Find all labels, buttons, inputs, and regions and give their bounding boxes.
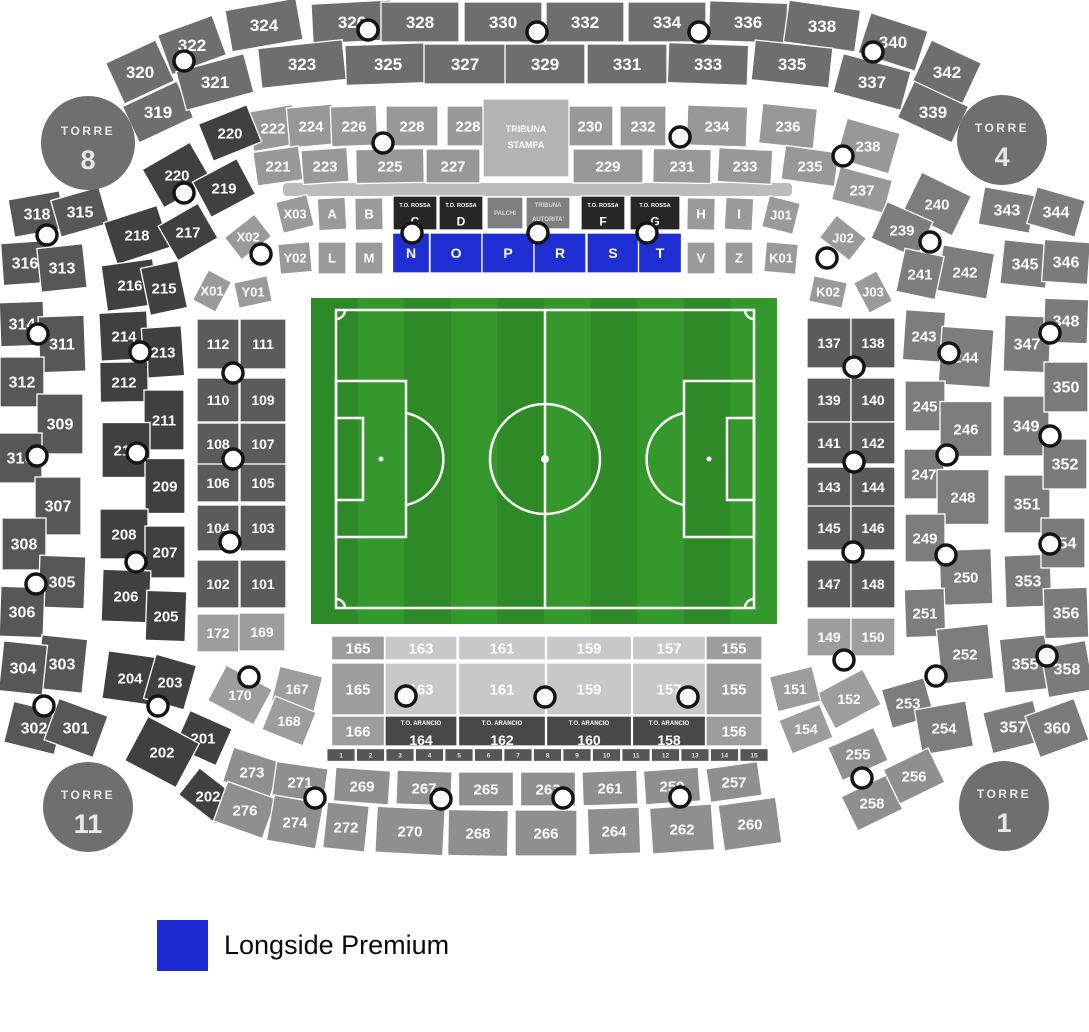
svg-text:236: 236 — [775, 118, 800, 135]
svg-text:226: 226 — [341, 118, 366, 135]
section-212: 212 — [100, 362, 149, 403]
svg-text:302: 302 — [21, 721, 48, 738]
section-PALCHI: PALCHI — [487, 197, 523, 229]
svg-text:165: 165 — [345, 681, 370, 698]
svg-text:163: 163 — [408, 640, 433, 657]
svg-text:162: 162 — [490, 732, 514, 748]
svg-text:256: 256 — [901, 768, 926, 785]
svg-text:TORRE: TORRE — [977, 787, 1031, 801]
section-102: 102 — [197, 560, 239, 608]
section-O[interactable]: O — [430, 233, 482, 273]
gate-marker — [939, 343, 959, 363]
svg-text:331: 331 — [613, 55, 641, 74]
gate-marker — [396, 686, 416, 706]
svg-text:225: 225 — [377, 158, 402, 175]
tower-11: TORRE11 — [43, 762, 133, 852]
gate-marker — [843, 542, 863, 562]
gate-marker — [130, 342, 150, 362]
svg-text:206: 206 — [113, 588, 138, 605]
gate-marker — [27, 446, 47, 466]
svg-text:319: 319 — [144, 103, 172, 122]
section-15: 15 — [740, 749, 769, 762]
section-10: 10 — [592, 749, 621, 762]
gate-marker — [127, 443, 147, 463]
section-266: 266 — [515, 810, 577, 856]
svg-text:H: H — [696, 207, 705, 222]
svg-text:320: 320 — [126, 63, 154, 82]
section-272: 272 — [323, 802, 370, 852]
svg-text:355: 355 — [1012, 657, 1039, 674]
svg-text:202: 202 — [149, 744, 174, 761]
svg-text:8: 8 — [80, 145, 95, 175]
svg-text:207: 207 — [152, 544, 177, 561]
svg-text:168: 168 — [277, 713, 301, 729]
svg-text:218: 218 — [124, 227, 149, 244]
section-160: T.O. ARANCIO160 — [547, 716, 632, 748]
svg-text:9: 9 — [575, 752, 579, 759]
svg-text:336: 336 — [734, 13, 762, 32]
section-335: 335 — [751, 40, 833, 88]
svg-text:274: 274 — [282, 814, 308, 831]
svg-text:330: 330 — [489, 13, 517, 32]
section-1: 1 — [327, 749, 356, 762]
svg-text:106: 106 — [206, 475, 230, 491]
svg-text:258: 258 — [859, 795, 884, 812]
svg-text:323: 323 — [288, 55, 316, 74]
section-172: 172 — [197, 614, 239, 652]
section-270: 270 — [375, 806, 445, 855]
section-221: 221 — [253, 146, 303, 186]
gate-marker — [936, 545, 956, 565]
gate-marker — [34, 696, 54, 716]
svg-text:T.O. ROSSA: T.O. ROSSA — [587, 203, 618, 209]
svg-text:345: 345 — [1012, 257, 1039, 274]
svg-text:227: 227 — [440, 158, 465, 175]
svg-text:268: 268 — [465, 825, 490, 842]
svg-text:K01: K01 — [769, 251, 793, 266]
gate-marker — [28, 324, 48, 344]
svg-text:261: 261 — [597, 780, 622, 797]
svg-text:215: 215 — [151, 280, 176, 297]
svg-text:154: 154 — [794, 721, 818, 737]
svg-text:262: 262 — [669, 821, 694, 838]
svg-text:161: 161 — [489, 681, 514, 698]
gate-marker — [852, 768, 872, 788]
section-343: 343 — [978, 187, 1036, 233]
section-154: 154 — [779, 704, 833, 754]
gate-marker — [431, 789, 451, 809]
gate-marker — [670, 787, 690, 807]
svg-text:347: 347 — [1014, 337, 1041, 354]
svg-text:311: 311 — [49, 337, 75, 354]
section-350: 350 — [1044, 362, 1088, 412]
svg-text:333: 333 — [694, 55, 722, 74]
svg-text:T.O. ROSSA: T.O. ROSSA — [445, 203, 476, 209]
section-313: 313 — [37, 244, 87, 293]
section-268: 268 — [448, 809, 509, 856]
svg-text:X01: X01 — [200, 284, 223, 299]
svg-text:213: 213 — [150, 344, 175, 361]
section-150: 150 — [851, 618, 895, 656]
svg-text:166: 166 — [345, 723, 370, 740]
svg-text:301: 301 — [63, 721, 90, 738]
section-207: 207 — [145, 526, 185, 578]
svg-text:R: R — [555, 245, 565, 261]
stadium-seat-map: 3223203243263283303323343363383403423193… — [0, 0, 1089, 1032]
svg-text:145: 145 — [817, 520, 841, 536]
svg-text:V: V — [697, 251, 706, 266]
gate-marker — [834, 650, 854, 670]
gate-marker — [305, 788, 325, 808]
gate-marker — [678, 687, 698, 707]
svg-text:250: 250 — [953, 569, 978, 586]
svg-text:316: 316 — [12, 256, 39, 273]
svg-text:328: 328 — [406, 13, 434, 32]
section-346: 346 — [1042, 239, 1089, 284]
section-356: 356 — [1043, 587, 1089, 639]
gate-marker — [26, 574, 46, 594]
svg-text:203: 203 — [157, 674, 182, 691]
tower-1: TORRE1 — [959, 761, 1049, 851]
svg-text:6: 6 — [487, 752, 491, 759]
section-145: 145 — [807, 506, 851, 550]
svg-text:221: 221 — [265, 158, 290, 175]
section-12: 12 — [651, 749, 680, 762]
gate-marker — [528, 223, 548, 243]
section-242: 242 — [935, 245, 994, 299]
svg-text:306: 306 — [9, 605, 36, 622]
section-241: 241 — [896, 248, 944, 299]
section-139: 139 — [807, 378, 851, 422]
svg-text:140: 140 — [861, 392, 885, 408]
section-254: 254 — [914, 701, 973, 755]
section-S[interactable]: S — [587, 233, 639, 273]
svg-text:109: 109 — [251, 392, 275, 408]
section-11: 11 — [622, 749, 651, 762]
section-101: 101 — [240, 560, 286, 608]
svg-text:217: 217 — [175, 224, 200, 241]
section-155: 155 — [706, 636, 762, 660]
gate-marker — [223, 363, 243, 383]
svg-text:248: 248 — [950, 489, 975, 506]
svg-text:Y01: Y01 — [241, 285, 264, 300]
svg-text:4: 4 — [428, 752, 432, 759]
section-233: 233 — [717, 148, 773, 185]
svg-text:103: 103 — [251, 520, 275, 536]
svg-text:202: 202 — [195, 788, 220, 805]
svg-text:358: 358 — [1054, 662, 1081, 679]
svg-text:P: P — [503, 245, 512, 261]
section-323: 323 — [258, 40, 347, 89]
svg-text:158: 158 — [657, 732, 681, 748]
svg-text:249: 249 — [912, 530, 937, 547]
section-169: 169 — [239, 613, 285, 651]
svg-text:223: 223 — [312, 158, 337, 175]
svg-text:15: 15 — [750, 752, 758, 759]
svg-text:148: 148 — [861, 576, 885, 592]
section-109: 109 — [240, 378, 286, 422]
svg-text:327: 327 — [451, 55, 479, 74]
walkway-band — [283, 183, 792, 196]
svg-text:237: 237 — [849, 182, 874, 199]
svg-text:313: 313 — [49, 261, 76, 278]
section-D: T.O. ROSSAD — [439, 196, 483, 230]
svg-text:164: 164 — [409, 732, 433, 748]
svg-text:144: 144 — [861, 479, 885, 495]
section-304: 304 — [0, 641, 47, 695]
gate-marker — [239, 667, 259, 687]
gate-marker — [844, 452, 864, 472]
section-14: 14 — [710, 749, 739, 762]
svg-text:107: 107 — [251, 436, 275, 452]
section-Y01: Y01 — [234, 276, 273, 309]
section-245: 245 — [905, 381, 945, 431]
svg-text:151: 151 — [783, 681, 807, 697]
svg-text:318: 318 — [24, 207, 51, 224]
svg-text:165: 165 — [345, 640, 370, 657]
svg-text:8: 8 — [546, 752, 550, 759]
svg-text:101: 101 — [251, 576, 275, 592]
svg-text:TORRE: TORRE — [975, 121, 1029, 135]
svg-text:353: 353 — [1015, 574, 1042, 591]
svg-text:5: 5 — [457, 752, 461, 759]
svg-text:11: 11 — [74, 809, 103, 839]
section-215: 215 — [140, 261, 187, 316]
section-234: 234 — [686, 105, 747, 147]
svg-text:334: 334 — [653, 13, 682, 32]
section-218: 218 — [104, 205, 171, 264]
section-311: 311 — [38, 315, 86, 373]
svg-text:209: 209 — [152, 478, 177, 495]
svg-text:T.O. ROSSA: T.O. ROSSA — [639, 203, 670, 209]
svg-text:264: 264 — [601, 823, 627, 840]
gate-marker — [937, 445, 957, 465]
section-13: 13 — [681, 749, 710, 762]
svg-text:TORRE: TORRE — [61, 124, 115, 138]
section-L: L — [318, 242, 346, 274]
section-8: 8 — [533, 749, 562, 762]
section-205: 205 — [145, 590, 187, 641]
svg-text:PALCHI: PALCHI — [494, 211, 516, 217]
svg-text:321: 321 — [201, 73, 229, 92]
svg-text:T: T — [656, 245, 665, 261]
football-pitch — [311, 298, 777, 624]
section-257: 257 — [706, 762, 762, 803]
svg-text:243: 243 — [911, 328, 936, 345]
svg-text:312: 312 — [9, 375, 36, 392]
svg-text:172: 172 — [206, 625, 230, 641]
svg-text:141: 141 — [817, 435, 841, 451]
svg-text:110: 110 — [207, 392, 230, 408]
svg-text:228: 228 — [399, 118, 424, 135]
svg-text:152: 152 — [837, 691, 861, 707]
svg-text:251: 251 — [912, 605, 937, 622]
section-J01: J01 — [762, 196, 801, 235]
svg-text:208: 208 — [111, 526, 136, 543]
svg-text:254: 254 — [931, 720, 957, 737]
svg-text:309: 309 — [47, 417, 74, 434]
svg-text:229: 229 — [595, 158, 620, 175]
svg-text:169: 169 — [250, 624, 274, 640]
svg-text:232: 232 — [630, 118, 655, 135]
svg-text:235: 235 — [797, 158, 822, 175]
section-F: T.O. ROSSAF — [581, 196, 625, 230]
svg-text:14: 14 — [721, 752, 729, 759]
svg-text:231: 231 — [669, 158, 694, 175]
section-151: 151 — [769, 666, 820, 712]
svg-text:315: 315 — [67, 205, 94, 222]
gate-marker — [1040, 426, 1060, 446]
section-224: 224 — [286, 104, 335, 148]
svg-text:270: 270 — [397, 823, 422, 840]
gate-marker — [174, 51, 194, 71]
svg-text:234: 234 — [704, 118, 730, 135]
svg-text:11: 11 — [633, 752, 640, 759]
section-158: T.O. ARANCIO158 — [633, 716, 706, 748]
svg-text:338: 338 — [808, 17, 836, 36]
legend-label: Longside Premium — [224, 930, 449, 961]
svg-text:360: 360 — [1044, 721, 1071, 738]
svg-text:337: 337 — [858, 73, 886, 92]
svg-text:157: 157 — [656, 640, 681, 657]
gate-marker — [373, 133, 393, 153]
gate-marker — [689, 22, 709, 42]
svg-text:224: 224 — [298, 118, 324, 135]
svg-text:F: F — [599, 215, 606, 229]
gate-marker — [637, 223, 657, 243]
section-105: 105 — [240, 464, 286, 502]
section-206: 206 — [101, 569, 151, 623]
svg-text:212: 212 — [111, 374, 136, 391]
section-336: 336 — [708, 1, 787, 44]
svg-text:M: M — [364, 251, 375, 266]
section-269: 269 — [333, 767, 390, 805]
section-236: 236 — [759, 103, 818, 149]
svg-text:349: 349 — [1013, 419, 1040, 436]
section-264: 264 — [587, 807, 641, 855]
svg-text:228: 228 — [455, 118, 480, 135]
svg-text:TRIBUNA: TRIBUNA — [506, 124, 547, 134]
svg-text:346: 346 — [1053, 255, 1080, 272]
section-333: 333 — [667, 43, 748, 86]
gate-marker — [223, 449, 243, 469]
section-147: 147 — [807, 560, 851, 608]
svg-text:305: 305 — [49, 575, 76, 592]
section-166: 166 — [332, 716, 385, 746]
section-140: 140 — [851, 378, 895, 422]
svg-text:D: D — [457, 215, 466, 229]
gate-marker — [174, 183, 194, 203]
section-P[interactable]: P — [482, 233, 534, 273]
section-349: 349 — [1003, 396, 1049, 456]
svg-text:241: 241 — [907, 266, 932, 283]
section-156: 156 — [706, 716, 762, 746]
gate-marker — [1037, 646, 1057, 666]
section-332: 332 — [546, 2, 624, 42]
svg-text:4: 4 — [994, 142, 1009, 172]
section-162: T.O. ARANCIO162 — [459, 716, 546, 748]
section-327: 327 — [424, 44, 506, 84]
section-M: M — [355, 242, 383, 274]
svg-text:339: 339 — [919, 103, 947, 122]
svg-text:X03: X03 — [283, 207, 306, 222]
svg-text:TORRE: TORRE — [61, 788, 115, 802]
section-209: 209 — [145, 459, 185, 514]
svg-text:233: 233 — [732, 158, 757, 175]
section-225: 225 — [356, 148, 425, 183]
section-159: 159 — [547, 636, 632, 660]
svg-text:7: 7 — [516, 752, 520, 759]
svg-text:220: 220 — [217, 125, 242, 142]
tower-4: TORRE4 — [957, 95, 1047, 185]
section-260: 260 — [718, 797, 782, 851]
gate-marker — [844, 357, 864, 377]
svg-text:13: 13 — [691, 752, 699, 759]
gate-marker — [817, 248, 837, 268]
svg-text:230: 230 — [577, 118, 602, 135]
section-328: 328 — [381, 2, 459, 42]
section-226: 226 — [330, 105, 377, 147]
gate-marker — [926, 666, 946, 686]
section-103: 103 — [240, 505, 286, 551]
section-6: 6 — [474, 749, 503, 762]
section-161: 161 — [459, 663, 546, 715]
section-3: 3 — [386, 749, 415, 762]
section-324: 324 — [225, 0, 303, 52]
svg-text:335: 335 — [778, 55, 806, 74]
svg-text:204: 204 — [117, 670, 143, 687]
svg-text:156: 156 — [721, 723, 746, 740]
svg-text:351: 351 — [1014, 497, 1041, 514]
section-161: 161 — [459, 636, 546, 660]
section-265: 265 — [459, 772, 514, 806]
section-V: V — [687, 242, 715, 274]
svg-text:105: 105 — [251, 475, 275, 491]
svg-text:1: 1 — [339, 752, 343, 759]
svg-text:1: 1 — [996, 808, 1011, 838]
svg-text:112: 112 — [207, 336, 230, 352]
section-164: T.O. ARANCIO164 — [385, 716, 457, 748]
svg-text:266: 266 — [533, 825, 558, 842]
svg-text:332: 332 — [571, 13, 599, 32]
svg-text:138: 138 — [861, 335, 885, 351]
section-229: 229 — [573, 149, 643, 183]
svg-text:239: 239 — [889, 222, 914, 239]
svg-text:159: 159 — [576, 681, 601, 698]
section-331: 331 — [587, 44, 667, 84]
tower-8: TORRE8 — [41, 96, 135, 190]
section-143: 143 — [807, 467, 851, 507]
svg-text:3: 3 — [398, 752, 402, 759]
svg-text:276: 276 — [232, 802, 257, 819]
svg-text:238: 238 — [855, 138, 880, 155]
section-A: A — [317, 197, 347, 230]
svg-text:X02: X02 — [236, 230, 259, 245]
svg-text:272: 272 — [333, 819, 358, 836]
svg-text:161: 161 — [489, 640, 514, 657]
gate-marker — [251, 244, 271, 264]
section-X03: X03 — [276, 195, 315, 234]
svg-text:265: 265 — [473, 781, 498, 798]
section-Y02: Y02 — [278, 242, 312, 275]
gate-marker — [1040, 323, 1060, 343]
svg-text:242: 242 — [952, 264, 977, 281]
section-231: 231 — [653, 148, 712, 183]
svg-text:155: 155 — [721, 640, 746, 657]
svg-text:102: 102 — [206, 576, 230, 592]
gate-marker — [1040, 534, 1060, 554]
section-235: 235 — [781, 145, 839, 186]
